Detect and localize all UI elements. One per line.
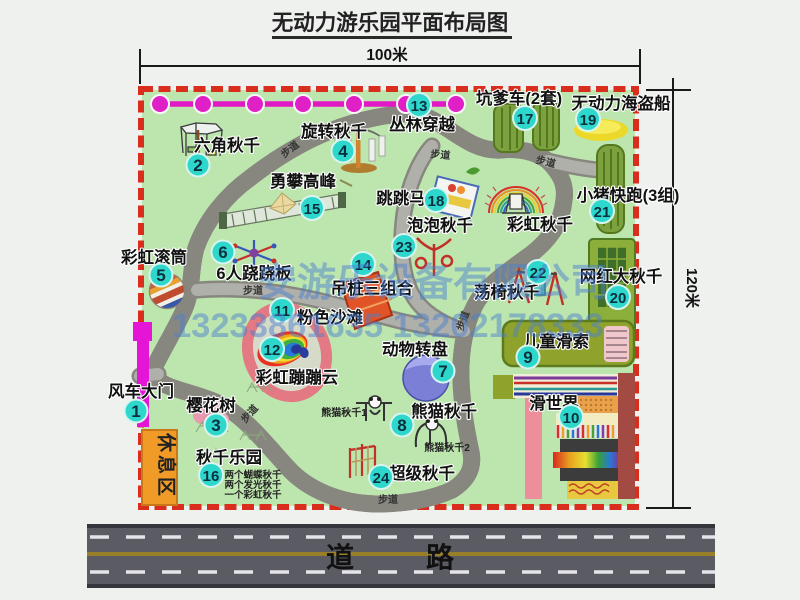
svg-text:6: 6 — [218, 243, 227, 262]
svg-text:樱花树: 樱花树 — [186, 395, 236, 415]
svg-text:六角秋千: 六角秋千 — [194, 135, 260, 155]
svg-text:16: 16 — [203, 468, 220, 485]
svg-text:13233861635 13202178333: 13233861635 13202178333 — [172, 307, 604, 345]
svg-text:18: 18 — [428, 193, 445, 210]
svg-text:熊猫秋千2: 熊猫秋千2 — [424, 441, 470, 454]
svg-text:8: 8 — [397, 416, 406, 435]
svg-text:熊猫秋千: 熊猫秋千 — [411, 401, 477, 421]
svg-text:3: 3 — [211, 416, 220, 435]
svg-text:1: 1 — [131, 402, 140, 421]
svg-text:5: 5 — [156, 266, 165, 285]
svg-text:跳跳马: 跳跳马 — [376, 188, 426, 208]
svg-text:13: 13 — [411, 98, 428, 115]
svg-text:彩虹秋千: 彩虹秋千 — [506, 214, 573, 234]
svg-text:15: 15 — [304, 201, 321, 218]
svg-text:安游乐设备有限公司: 安游乐设备有限公司 — [258, 262, 609, 305]
svg-text:23: 23 — [396, 239, 413, 256]
svg-text:一个彩虹秋千: 一个彩虹秋千 — [224, 489, 282, 501]
svg-text:勇攀高峰: 勇攀高峰 — [270, 171, 337, 191]
svg-text:24: 24 — [373, 470, 390, 487]
svg-text:2: 2 — [193, 156, 202, 175]
svg-text:100米: 100米 — [366, 45, 408, 64]
svg-text:熊猫秋千1: 熊猫秋千1 — [321, 406, 367, 419]
svg-text:道: 道 — [326, 541, 354, 573]
svg-text:路: 路 — [426, 542, 455, 573]
svg-text:无动力游乐园平面布局图: 无动力游乐园平面布局图 — [272, 10, 509, 35]
svg-text:彩虹蹦蹦云: 彩虹蹦蹦云 — [255, 367, 339, 387]
svg-text:步道: 步道 — [378, 493, 398, 506]
svg-text:7: 7 — [438, 362, 447, 381]
svg-text:旋转秋千: 旋转秋千 — [300, 121, 367, 141]
svg-text:9: 9 — [523, 348, 532, 367]
svg-text:4: 4 — [338, 142, 348, 161]
svg-text:彩虹滚筒: 彩虹滚筒 — [120, 247, 187, 267]
svg-text:17: 17 — [517, 111, 534, 128]
svg-text:泡泡秋千: 泡泡秋千 — [407, 215, 473, 235]
svg-text:小猪快跑(3组): 小猪快跑(3组) — [577, 185, 680, 205]
svg-text:10: 10 — [563, 410, 580, 427]
svg-text:20: 20 — [610, 290, 627, 307]
svg-text:超级秋千: 超级秋千 — [389, 463, 455, 483]
svg-text:休息区: 休息区 — [155, 432, 178, 499]
svg-text:风车大门: 风车大门 — [108, 381, 174, 401]
svg-text:21: 21 — [594, 204, 611, 221]
svg-text:19: 19 — [580, 112, 597, 129]
svg-text:坑爹车(2套): 坑爹车(2套) — [476, 88, 562, 108]
svg-text:120米: 120米 — [683, 268, 701, 309]
